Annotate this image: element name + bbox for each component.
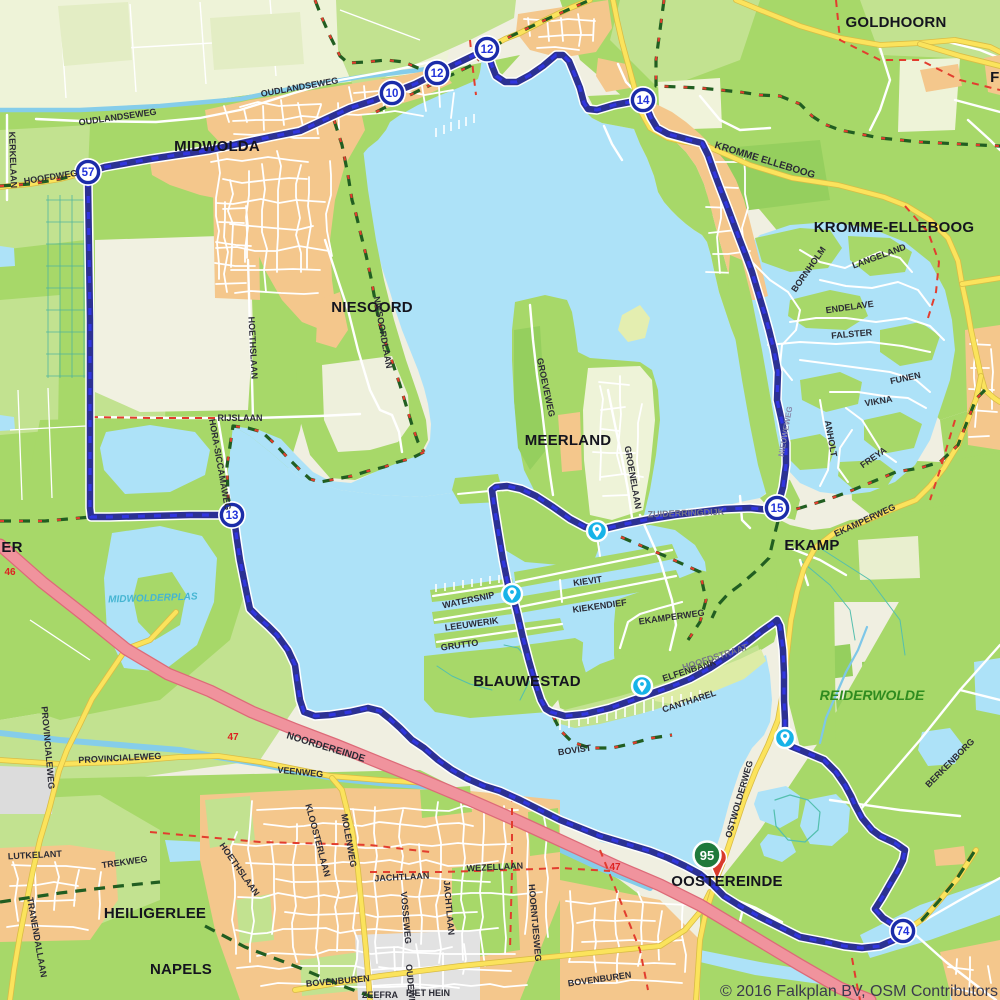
svg-text:BLAUWESTAD: BLAUWESTAD (473, 673, 581, 690)
svg-text:46: 46 (4, 567, 16, 578)
svg-text:HEILIGERLEE: HEILIGERLEE (104, 905, 206, 922)
svg-text:ER: ER (1, 539, 22, 556)
svg-text:OOSTEREINDE: OOSTEREINDE (671, 873, 782, 890)
svg-text:MIDWOLDA: MIDWOLDA (174, 138, 260, 155)
svg-text:EKAMP: EKAMP (784, 537, 839, 554)
svg-text:47: 47 (609, 862, 621, 873)
svg-text:NIESOORD: NIESOORD (331, 299, 413, 316)
svg-text:12: 12 (431, 68, 444, 80)
svg-text:FI: FI (990, 69, 1000, 86)
svg-text:57: 57 (82, 167, 95, 179)
svg-text:PIET HEIN: PIET HEIN (406, 988, 450, 998)
svg-text:© 2016 Falkplan BV, OSM Contri: © 2016 Falkplan BV, OSM Contributors (720, 983, 998, 1000)
svg-text:74: 74 (897, 926, 910, 938)
svg-text:KERKELAAN: KERKELAAN (7, 131, 19, 188)
svg-text:GOLDHOORN: GOLDHOORN (846, 14, 947, 31)
svg-text:47: 47 (227, 732, 239, 743)
svg-text:15: 15 (771, 503, 784, 515)
svg-text:NAPELS: NAPELS (150, 961, 212, 978)
svg-text:10: 10 (386, 88, 399, 100)
svg-text:MEERLAND: MEERLAND (525, 432, 612, 449)
svg-text:REIDERWOLDE: REIDERWOLDE (820, 687, 925, 703)
svg-text:KROMME-ELLEBOOG: KROMME-ELLEBOOG (814, 219, 975, 236)
svg-text:ZEEFRA: ZEEFRA (362, 990, 399, 1000)
svg-text:14: 14 (637, 95, 650, 107)
svg-text:95: 95 (700, 848, 714, 863)
svg-text:RIJSLAAN: RIJSLAAN (217, 413, 262, 423)
svg-text:12: 12 (481, 44, 494, 56)
svg-text:13: 13 (226, 510, 239, 522)
